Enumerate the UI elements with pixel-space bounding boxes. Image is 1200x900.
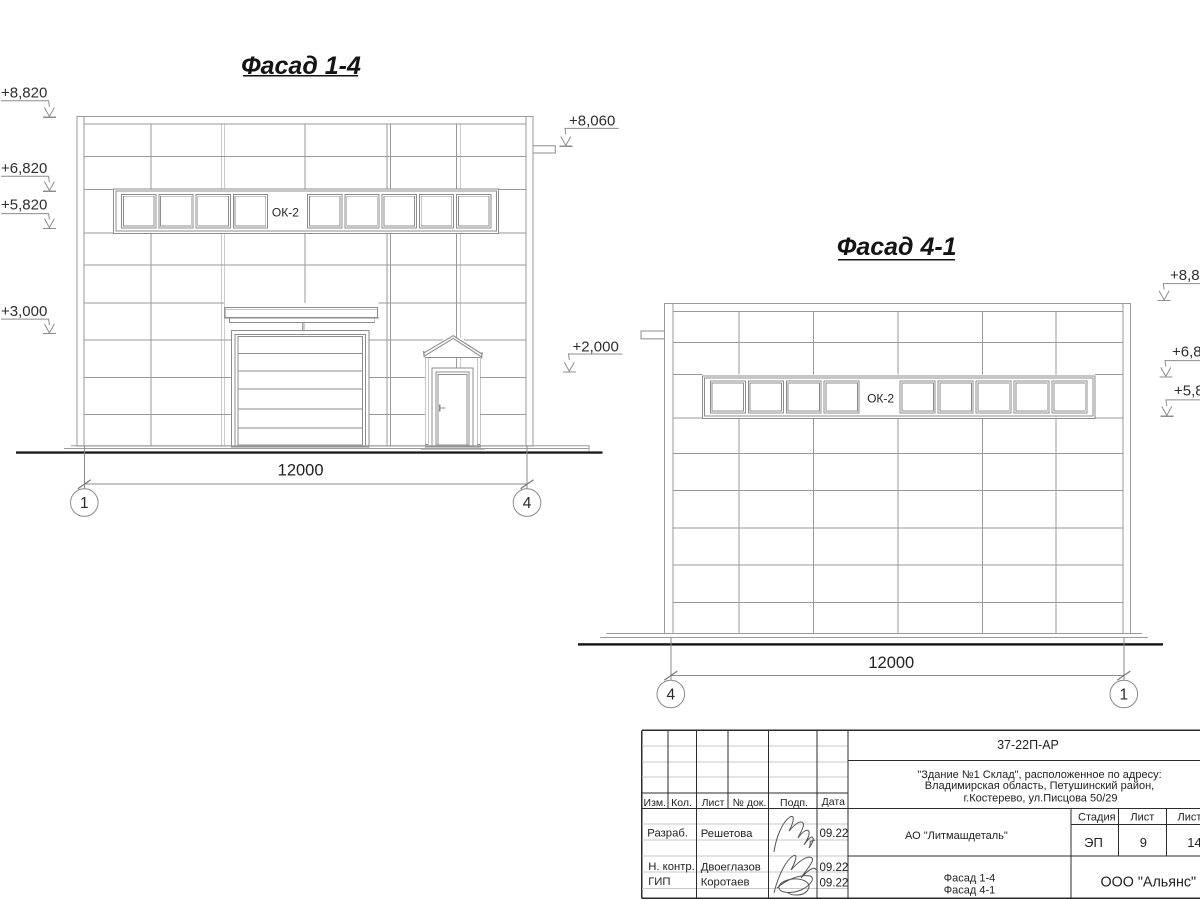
svg-text:+2,000: +2,000 [573, 339, 619, 356]
svg-text:г.Костерево, ул.Писцова 50/29: г.Костерево, ул.Писцова 50/29 [964, 793, 1118, 805]
svg-text:+8,060: +8,060 [569, 113, 615, 130]
svg-text:Лист: Лист [1130, 811, 1154, 823]
svg-text:ОК-2: ОК-2 [867, 392, 894, 406]
svg-text:ООО "Альянс": ООО "Альянс" [1101, 875, 1197, 891]
svg-text:Фасад 4-1: Фасад 4-1 [944, 884, 995, 896]
svg-text:Листов: Листов [1178, 811, 1200, 823]
svg-text:Изм.: Изм. [644, 797, 667, 809]
svg-text:4: 4 [666, 686, 675, 703]
svg-text:9: 9 [1140, 835, 1147, 850]
svg-text:12000: 12000 [868, 654, 914, 672]
svg-text:Подп.: Подп. [780, 797, 808, 809]
svg-text:Кол.: Кол. [671, 797, 692, 809]
svg-text:+5,820: +5,820 [1, 197, 47, 214]
svg-text:+6,820: +6,820 [1, 160, 47, 177]
svg-text:Разраб.: Разраб. [647, 828, 688, 840]
svg-text:АО "Литмашдеталь": АО "Литмашдеталь" [905, 830, 1008, 842]
svg-text:Владимирская область, Петушинс: Владимирская область, Петушинский район, [925, 780, 1154, 792]
svg-text:Н. контр.: Н. контр. [648, 861, 695, 873]
svg-text:№ док.: № док. [733, 797, 767, 809]
svg-text:12000: 12000 [278, 461, 324, 479]
svg-text:Дата: Дата [822, 796, 845, 808]
svg-text:37-22П-АР: 37-22П-АР [997, 738, 1059, 752]
svg-text:Коротаев: Коротаев [701, 877, 750, 889]
svg-text:09.22: 09.22 [820, 878, 849, 890]
svg-text:09.22: 09.22 [820, 862, 849, 874]
svg-text:Двоеглазов: Двоеглазов [701, 862, 761, 874]
svg-text:+5,820: +5,820 [1174, 383, 1200, 400]
svg-text:Решетова: Решетова [701, 828, 753, 840]
svg-text:Лист: Лист [702, 797, 725, 809]
svg-text:Фасад 4-1: Фасад 4-1 [837, 233, 957, 261]
svg-text:+3,000: +3,000 [1, 303, 47, 320]
svg-text:+8,820: +8,820 [1170, 267, 1200, 284]
svg-text:1: 1 [80, 495, 89, 512]
svg-text:ОК-2: ОК-2 [272, 206, 299, 220]
svg-text:ЭП: ЭП [1084, 835, 1103, 850]
svg-text:ГИП: ГИП [648, 876, 670, 888]
svg-text:4: 4 [523, 495, 532, 512]
svg-text:09.22: 09.22 [820, 828, 849, 840]
svg-text:14: 14 [1187, 835, 1200, 850]
svg-text:Фасад 1-4: Фасад 1-4 [944, 872, 995, 884]
svg-text:+6,820: +6,820 [1172, 344, 1200, 361]
svg-text:1: 1 [1119, 686, 1128, 703]
svg-text:+8,820: +8,820 [1, 85, 47, 102]
svg-text:Стадия: Стадия [1078, 811, 1116, 823]
